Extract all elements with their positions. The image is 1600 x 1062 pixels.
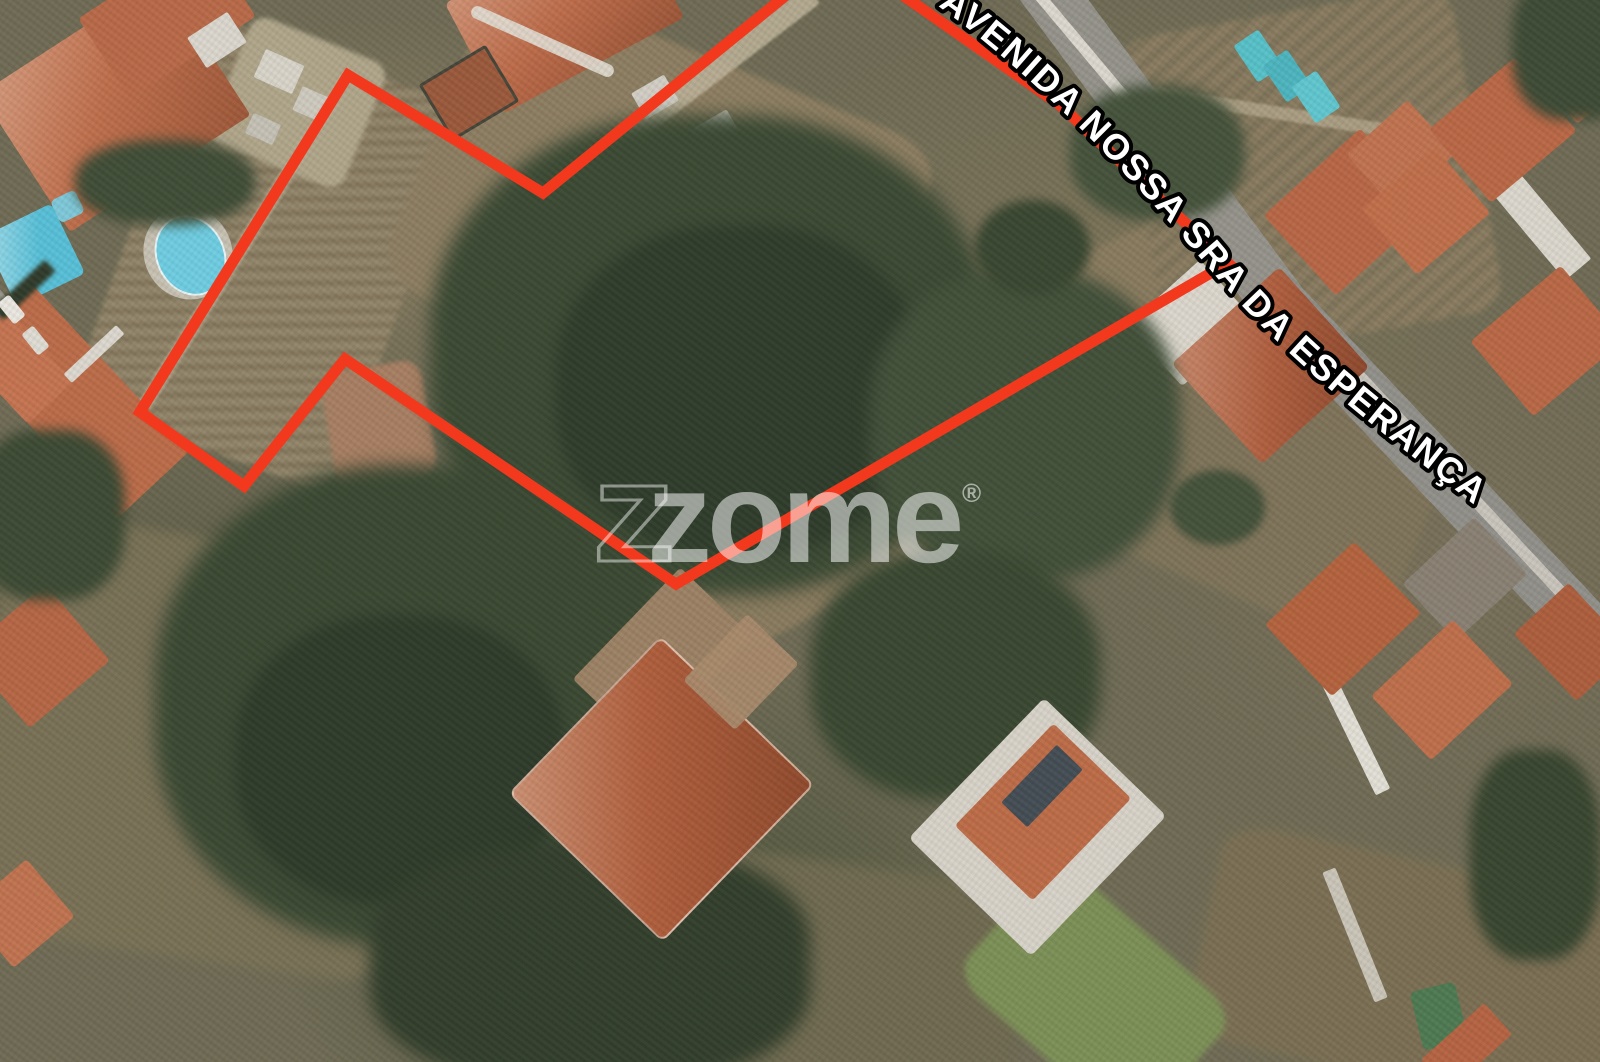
- street-name-label: AVENIDA NOSSA SRA DA ESPERANÇA: [933, 0, 1496, 512]
- satellite-photo: AVENIDA NOSSA SRA DA ESPERANÇA z zome ®: [0, 0, 1600, 1062]
- map-overlay: AVENIDA NOSSA SRA DA ESPERANÇA: [0, 0, 1600, 1062]
